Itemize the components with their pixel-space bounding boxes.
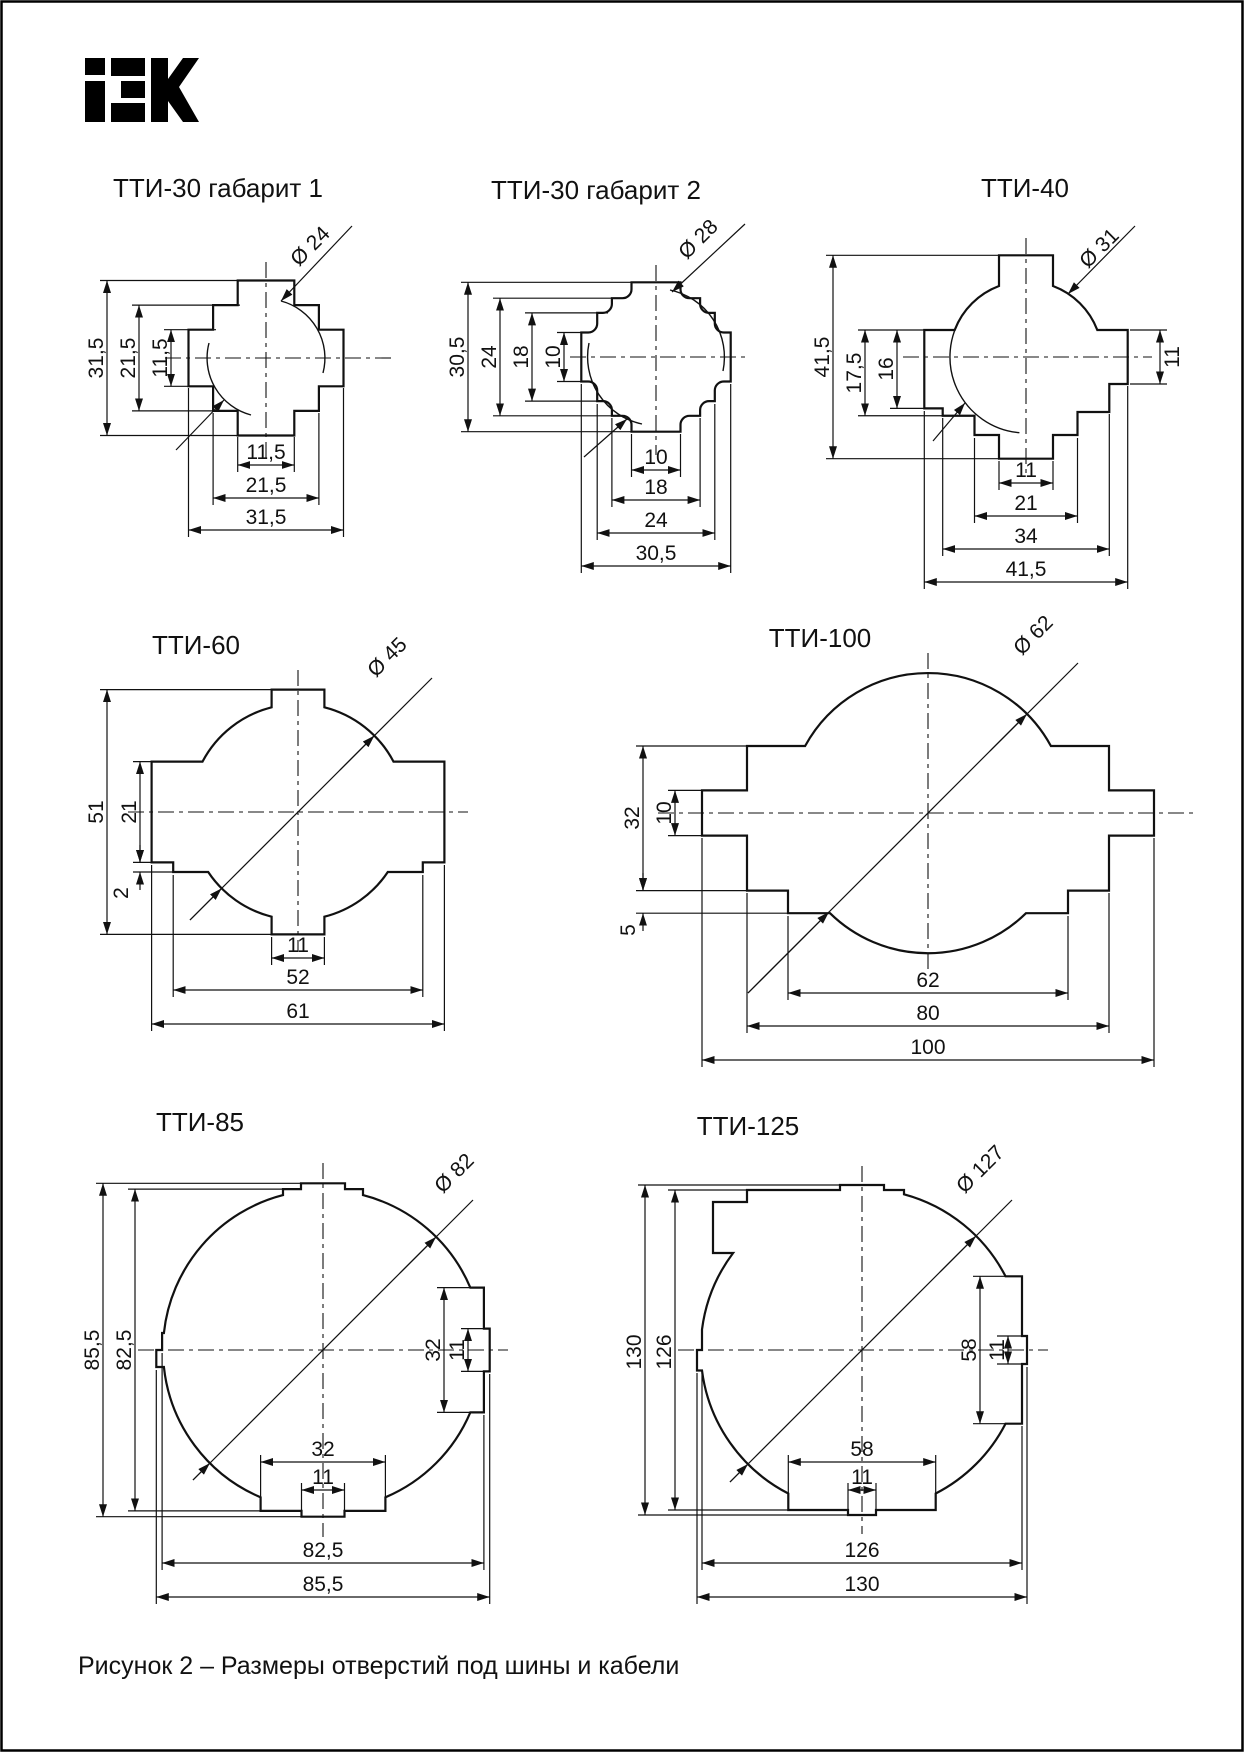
dim-label: 21,5 xyxy=(246,474,287,497)
diameter-label: Ø 28 xyxy=(674,215,722,263)
datasheet-page: ТТИ-30 габарит 1 31,5 21,5 xyxy=(0,0,1244,1752)
diameter-callout: Ø 45 xyxy=(190,633,432,920)
dim-label: 5 xyxy=(617,924,640,936)
drawing-tti-40: ТТИ-40 xyxy=(811,173,1184,589)
dim-label: 11 xyxy=(1161,346,1184,368)
dim-label: 24 xyxy=(478,345,501,369)
logo-e-mid xyxy=(121,81,145,98)
dim-label: 11 xyxy=(986,1339,1009,1361)
dim-label: 58 xyxy=(850,1438,873,1461)
dim-label: 10 xyxy=(653,801,676,824)
drawing-tti-85: ТТИ-85 xyxy=(81,1107,508,1604)
dim-label: 21 xyxy=(1014,492,1037,515)
drawing-title: ТТИ-85 xyxy=(156,1107,244,1137)
dim-label: 31,5 xyxy=(85,338,108,379)
logo-e-top xyxy=(111,58,145,76)
drawing-title: ТТИ-100 xyxy=(769,623,872,653)
dim-label: 11 xyxy=(851,1466,873,1489)
dim-label: 31,5 xyxy=(246,506,287,529)
logo-i-dot xyxy=(85,58,105,75)
dim-label: 18 xyxy=(510,345,533,368)
dim-label: 21 xyxy=(118,800,141,823)
diameter-callout: Ø 127 xyxy=(730,1141,1012,1482)
diameter-label: Ø 82 xyxy=(430,1149,478,1197)
dim-label: 32 xyxy=(311,1438,334,1461)
diameter-callout: Ø 62 xyxy=(748,611,1078,993)
dim-label: 17,5 xyxy=(843,353,866,394)
dim-label: 58 xyxy=(958,1338,981,1361)
drawing-title: ТТИ-30 габарит 2 xyxy=(491,175,701,205)
diameter-callout: Ø 31 xyxy=(933,224,1135,441)
dim-label: 100 xyxy=(910,1036,945,1059)
circle-arc xyxy=(588,343,642,424)
dim-label: 16 xyxy=(875,357,898,380)
figure-caption: Рисунок 2 – Размеры отверстий под шины и… xyxy=(78,1652,679,1680)
dim-label: 30,5 xyxy=(636,542,677,565)
dimension-lines xyxy=(638,1185,1027,1604)
dim-label: 11 xyxy=(1015,459,1037,482)
dimension-lines xyxy=(100,281,344,538)
diameter-label: Ø 31 xyxy=(1075,224,1123,272)
dimension-lines xyxy=(96,1183,490,1604)
dim-label: 32 xyxy=(621,806,644,829)
dim-label: 24 xyxy=(644,509,668,532)
dim-label: 85,5 xyxy=(303,1573,344,1596)
dim-label: 32 xyxy=(422,1338,445,1361)
dim-label: 18 xyxy=(644,476,667,499)
dim-label: 61 xyxy=(286,1000,309,1023)
drawing-tti-30-gabarit-1: ТТИ-30 габарит 1 31,5 21,5 xyxy=(85,173,395,537)
logo-k xyxy=(151,58,199,122)
dim-label: 82,5 xyxy=(303,1539,344,1562)
diameter-callout: Ø 82 xyxy=(193,1149,479,1480)
circle-arc xyxy=(670,290,724,371)
diameter-label: Ø 45 xyxy=(363,633,411,681)
drawing-tti-125: ТТИ-125 xyxy=(623,1111,1048,1604)
dim-label: 34 xyxy=(1014,525,1038,548)
drawing-tti-60: ТТИ-60 51 21 2 11 52 61 xyxy=(85,630,468,1031)
dimension-lines xyxy=(826,255,1167,589)
diameter-label: Ø 24 xyxy=(286,222,335,271)
logo-i-bar xyxy=(85,81,105,122)
dim-label: 80 xyxy=(916,1002,939,1025)
dim-label: 62 xyxy=(916,969,939,992)
dimension-lines xyxy=(636,746,1154,1067)
drawing-tti-30-gabarit-2: ТТИ-30 габарит 2 xyxy=(446,175,748,573)
drawing-title: ТТИ-30 габарит 1 xyxy=(113,173,323,203)
iek-logo xyxy=(85,58,199,122)
diameter-label: Ø 62 xyxy=(1009,611,1057,659)
diameter-label: Ø 127 xyxy=(952,1141,1009,1198)
dim-label: 41,5 xyxy=(1006,558,1047,581)
diameter-callout: Ø 24 xyxy=(176,222,352,450)
drawing-title: ТТИ-40 xyxy=(981,173,1069,203)
dim-label: 11 xyxy=(312,1466,334,1489)
dim-label: 10 xyxy=(542,345,565,368)
drawing-tti-100: ТТИ-100 32 10 5 62 80 100 xyxy=(617,611,1196,1067)
dim-label: 85,5 xyxy=(81,1330,104,1371)
dim-label: 10 xyxy=(644,446,667,469)
dim-label: 126 xyxy=(653,1334,676,1369)
dim-label: 51 xyxy=(85,800,108,823)
dim-label: 52 xyxy=(286,966,309,989)
dim-label: 11,5 xyxy=(246,441,285,464)
drawing-title: ТТИ-125 xyxy=(697,1111,800,1141)
dim-label: 11 xyxy=(446,1339,469,1361)
dim-label: 11,5 xyxy=(149,338,172,377)
logo-e-bottom xyxy=(111,103,145,122)
dim-label: 126 xyxy=(844,1539,879,1562)
dim-label: 130 xyxy=(844,1573,879,1596)
dim-label: 30,5 xyxy=(446,337,469,378)
dim-label: 41,5 xyxy=(811,337,834,378)
figure-canvas: ТТИ-30 габарит 1 31,5 21,5 xyxy=(0,0,1244,1752)
drawing-title: ТТИ-60 xyxy=(152,630,240,660)
dim-label: 130 xyxy=(623,1334,646,1369)
dim-label: 2 xyxy=(110,887,133,899)
page-border xyxy=(2,2,1243,1751)
dim-label: 11 xyxy=(287,934,309,957)
dim-label: 82,5 xyxy=(113,1330,136,1371)
dim-label: 21,5 xyxy=(117,338,140,379)
